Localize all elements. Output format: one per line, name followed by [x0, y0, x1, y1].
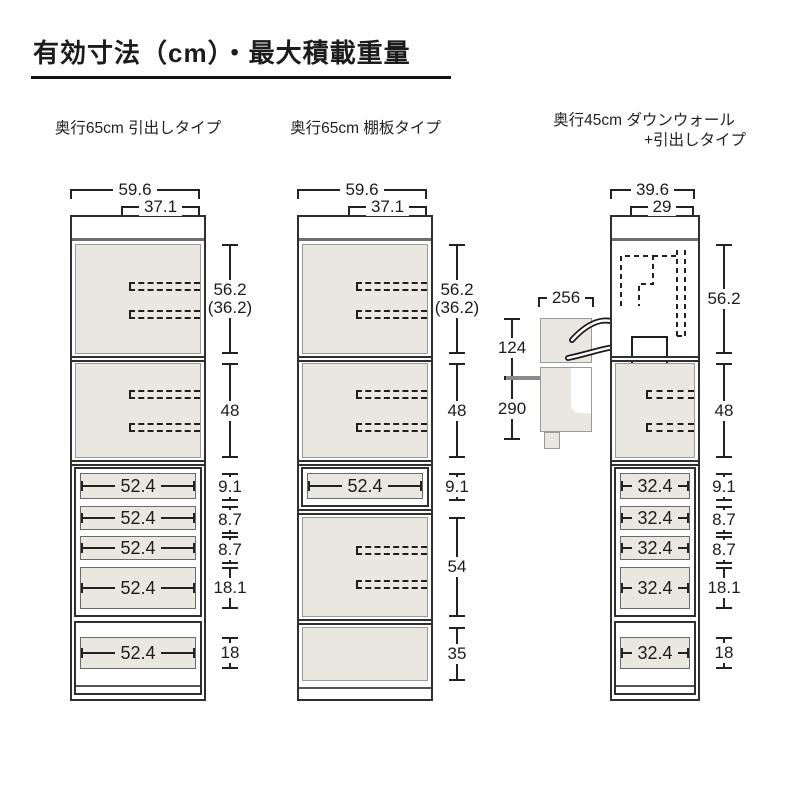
kickboard-line [299, 687, 431, 689]
cab3-drawer2-height-dim: 8.7 [700, 506, 748, 530]
drawer-width-label: 52.4 [115, 509, 160, 527]
shelf-position-mark [129, 282, 200, 291]
cabinet-downwall-type: 32.4 32.4 32.4 32.4 32.4 [610, 215, 700, 701]
cab2-divider [299, 509, 431, 515]
cab3-middle-compartment [615, 363, 695, 458]
drawer-row: 32.4 [620, 637, 690, 669]
cab1-divider [72, 460, 204, 466]
drawer-row: 52.4 [80, 567, 196, 609]
drawer-row: 32.4 [620, 536, 690, 560]
diagram-page: 有効寸法（cm）・最大積載重量 奥行65cm 引出しタイプ 奥行65cm 棚板タ… [0, 0, 800, 800]
drawer-row: 32.4 [620, 473, 690, 499]
cab2-lower-shelf-compartment [302, 517, 428, 617]
cab1-drawer2-height-dim: 8.7 [206, 506, 254, 530]
cab2-lower-shelf-height-dim: 54 [433, 517, 481, 617]
profile-foot [544, 432, 560, 449]
shelf-position-mark [129, 310, 200, 319]
cab2-base-compartment [302, 627, 428, 681]
drawer-width-label: 32.4 [632, 579, 677, 597]
kickboard-line [76, 685, 200, 687]
column-header-shelf-type: 奥行65cm 棚板タイプ [268, 119, 463, 139]
cab1-upper-height-dim: 56.2(36.2) [206, 244, 254, 354]
drawer-width-label: 32.4 [632, 477, 677, 495]
drawer-row: 52.4 [80, 536, 196, 560]
cab3-base-compartment: 32.4 [614, 621, 696, 695]
cab1-upper-compartment [75, 244, 201, 354]
cab3-divider [612, 460, 698, 466]
drawer-width-label: 32.4 [632, 509, 677, 527]
cab1-drawer3-height-dim: 8.7 [206, 536, 254, 560]
cab1-drawer-stack: 52.4 52.4 52.4 52.4 [74, 467, 202, 617]
title-underline [31, 76, 451, 79]
cab2-upper-compartment [302, 244, 428, 354]
drawer-width-label: 52.4 [115, 477, 160, 495]
shelf-position-mark [646, 390, 694, 399]
shelf-position-mark [356, 546, 427, 555]
cab2-divider [299, 356, 431, 362]
cabinet-shelf-type: 52.4 [297, 215, 433, 701]
cab3-upper-height-dim: 56.2 [700, 244, 748, 354]
cab2-top-rail [299, 238, 431, 241]
drawer-row: 52.4 [307, 473, 423, 499]
cab1-drawer4-height-dim: 18.1 [206, 567, 254, 609]
shelf-position-mark [356, 580, 427, 589]
page-title: 有効寸法（cm）・最大積載重量 [33, 33, 411, 70]
drawer-width-label: 52.4 [115, 644, 160, 662]
cabinet-drawer-type: 52.4 52.4 52.4 52.4 52.4 [70, 215, 206, 701]
drawer-row: 32.4 [620, 506, 690, 530]
cab2-divider [299, 619, 431, 625]
cab3-middle-height-dim: 48 [700, 363, 748, 458]
cab2-drawer-height-dim: 9.1 [433, 473, 481, 499]
cab3-downwall-compartment [615, 244, 695, 354]
kickboard-line [616, 685, 694, 687]
shelf-position-mark [356, 310, 427, 319]
cab3-drawer-stack: 32.4 32.4 32.4 32.4 [614, 467, 696, 617]
cab1-middle-compartment [75, 363, 201, 458]
cab1-inner-width-dim: 37.1 [121, 198, 200, 216]
cab2-inner-width-dim: 37.1 [348, 198, 427, 216]
cab1-base-compartment: 52.4 [74, 621, 202, 695]
cab3-drawer3-height-dim: 8.7 [700, 536, 748, 560]
drawer-width-label: 52.4 [342, 477, 387, 495]
cab2-upper-height-dim: 56.2(36.2) [433, 244, 481, 354]
cab2-outer-width-dim: 59.6 [297, 181, 427, 199]
inset-lower-height-dim: 290 [492, 378, 532, 440]
cab1-middle-height-dim: 48 [206, 363, 254, 458]
shelf-position-mark [129, 423, 200, 432]
drawer-width-label: 32.4 [632, 539, 677, 557]
shelf-position-mark [356, 423, 427, 432]
cab2-middle-height-dim: 48 [433, 363, 481, 458]
cab2-middle-compartment [302, 363, 428, 458]
cab1-top-rail [72, 238, 204, 241]
drawer-width-label: 52.4 [115, 579, 160, 597]
drawer-width-label: 52.4 [115, 539, 160, 557]
cab3-drawer1-height-dim: 9.1 [700, 473, 748, 499]
inset-dim-separator [506, 376, 544, 380]
drawer-width-label: 32.4 [632, 644, 677, 662]
inset-upper-height-dim: 124 [492, 318, 532, 378]
shelf-position-mark [129, 390, 200, 399]
column-header-downwall-type: 奥行45cm ダウンウォール +引出しタイプ [528, 111, 760, 151]
shelf-position-mark [356, 282, 427, 291]
drawer-row: 52.4 [80, 506, 196, 530]
drawer-row: 32.4 [620, 567, 690, 609]
cab3-divider [612, 356, 698, 362]
shelf-position-mark [356, 390, 427, 399]
cab2-drawer-zone: 52.4 [301, 467, 429, 507]
column-header-downwall-line2: +引出しタイプ [528, 131, 760, 151]
cab3-drawer4-height-dim: 18.1 [700, 567, 748, 609]
cab1-drawer1-height-dim: 9.1 [206, 473, 254, 499]
cab3-top-rail [612, 238, 698, 241]
column-header-downwall-line1: 奥行45cm ダウンウォール [553, 112, 735, 129]
cab2-divider [299, 460, 431, 466]
cab1-outer-width-dim: 59.6 [70, 181, 200, 199]
drawer-row: 52.4 [80, 473, 196, 499]
shelf-position-mark [646, 423, 694, 432]
cab3-base-drawer-height-dim: 18 [700, 637, 748, 669]
column-header-drawer-type: 奥行65cm 引出しタイプ [38, 119, 238, 139]
drawer-row: 52.4 [80, 637, 196, 669]
cab3-inner-width-dim: 29 [630, 198, 694, 216]
cab1-base-drawer-height-dim: 18 [206, 637, 254, 669]
cab2-base-height-dim: 35 [433, 627, 481, 681]
cab1-divider [72, 356, 204, 362]
